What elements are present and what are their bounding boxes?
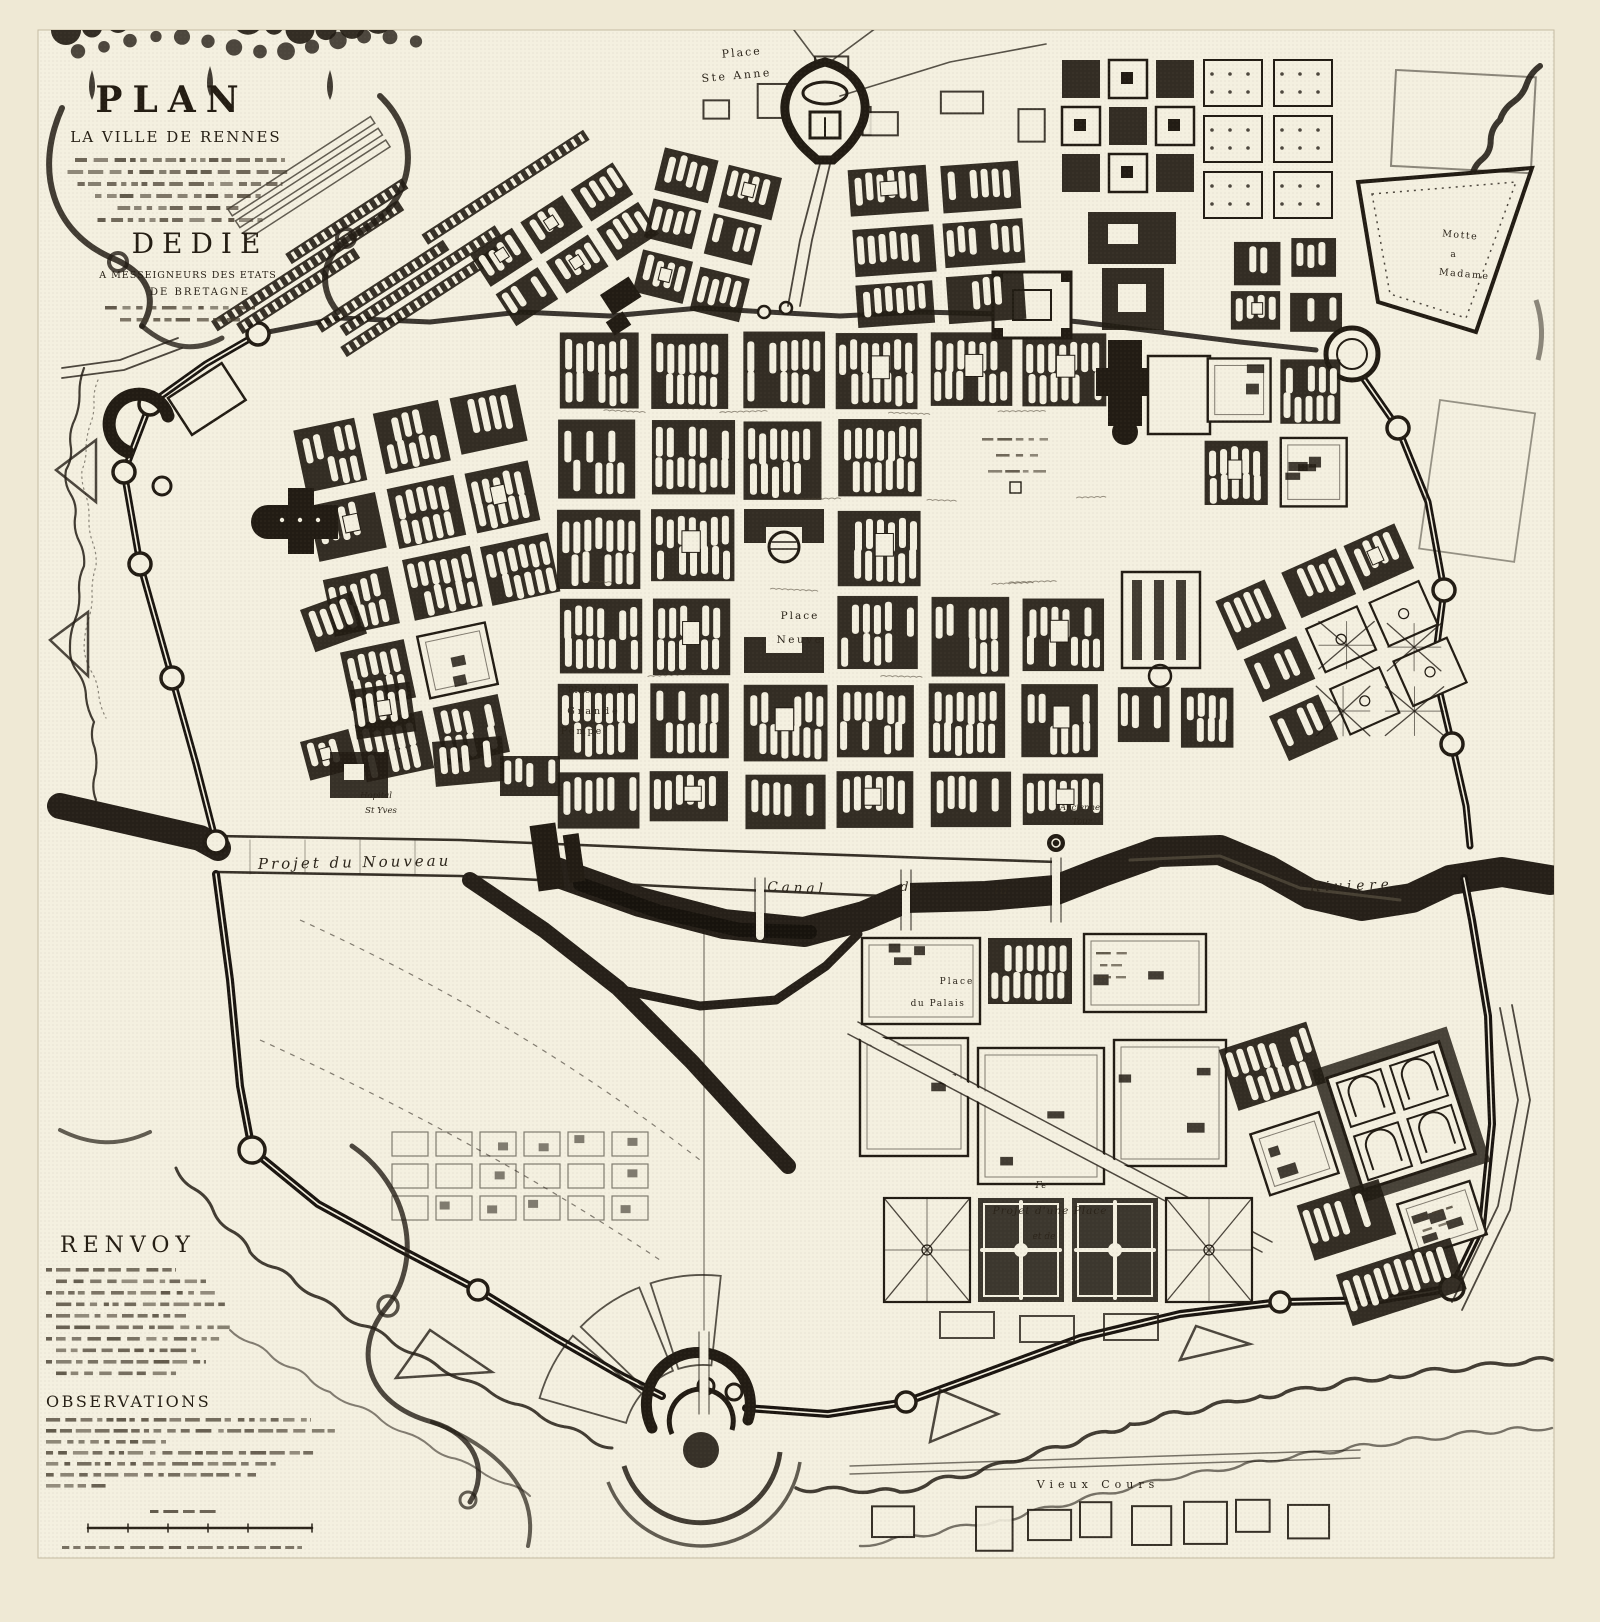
photographed-map-page: PLAN LA VILLE DE RENNES DEDIE A MESSEIGN…	[0, 0, 1600, 1622]
halftone-grain	[38, 30, 1554, 1558]
rennes-historic-map: PLAN LA VILLE DE RENNES DEDIE A MESSEIGN…	[0, 0, 1600, 1622]
